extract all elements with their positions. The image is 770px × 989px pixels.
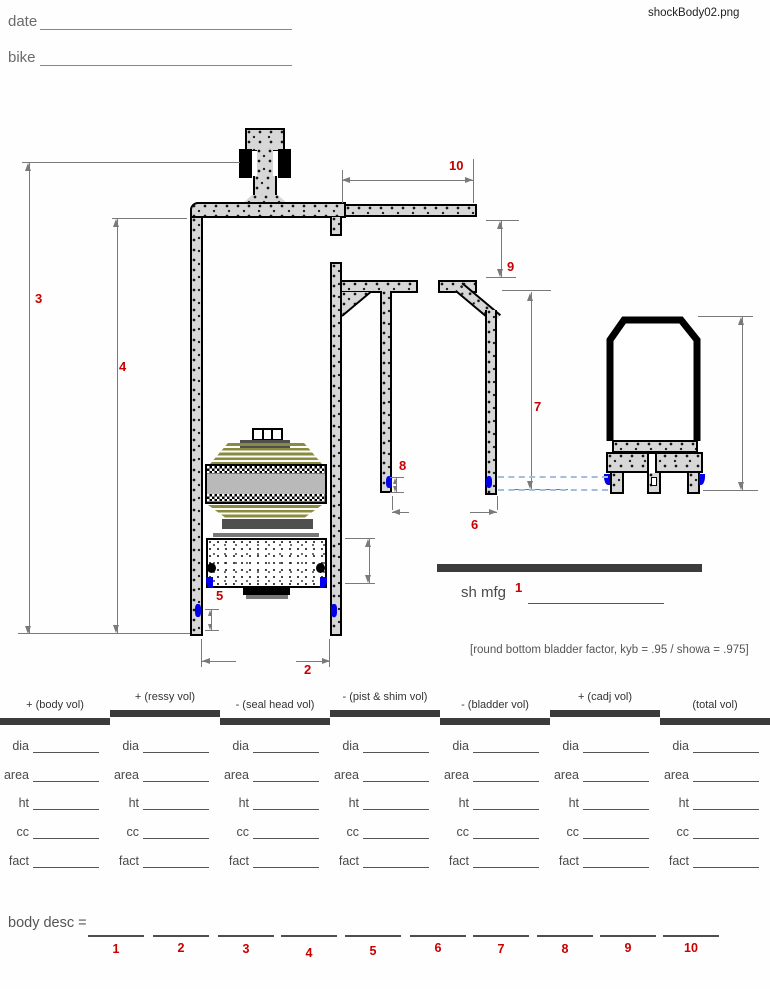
row-label: area	[334, 769, 359, 782]
dim-arrow	[489, 509, 497, 515]
table-row: fact	[110, 845, 209, 868]
dim-line	[742, 316, 743, 490]
vol-input-line[interactable]	[33, 740, 99, 753]
dim-line	[29, 162, 30, 634]
dim-arrow	[365, 575, 371, 583]
bladder-leg-center	[647, 473, 661, 494]
seal-bar-black	[243, 588, 290, 595]
shim-stack-lower	[208, 505, 322, 520]
table-row: area	[0, 759, 99, 782]
wall-oring-left	[195, 604, 201, 617]
vol-input-line[interactable]	[33, 855, 99, 868]
bike-label: bike	[8, 49, 36, 66]
vol-input-line[interactable]	[363, 855, 429, 868]
shim-stack-upper	[210, 443, 322, 464]
row-label: area	[664, 769, 689, 782]
date-input-line[interactable]	[40, 14, 292, 30]
bladder-top-line	[213, 533, 319, 537]
column-divider-bar	[550, 710, 660, 717]
dim-line	[342, 180, 473, 181]
bladder-leg-left	[610, 473, 624, 494]
table-row: cc	[220, 816, 319, 839]
nut-divider	[271, 430, 273, 439]
row-label: cc	[17, 826, 30, 839]
column-divider-bar	[440, 718, 550, 725]
slot-number-10: 10	[663, 941, 719, 955]
dim-arrow	[342, 177, 350, 183]
dim-line	[486, 277, 516, 278]
sh-mfg-label: sh mfg	[461, 584, 506, 601]
vol-input-line[interactable]	[583, 769, 649, 782]
row-label: ht	[129, 797, 139, 810]
dim-line	[345, 583, 375, 584]
column-header: + (body vol)	[0, 699, 110, 711]
dim-line	[502, 290, 551, 291]
row-label: ht	[19, 797, 29, 810]
vol-input-line[interactable]	[253, 769, 319, 782]
table-row: dia	[220, 730, 319, 753]
oring-marker-reservoir	[486, 476, 492, 488]
dim-arrow	[113, 625, 119, 633]
table-row: fact	[220, 845, 319, 868]
dim-arrow	[392, 509, 400, 515]
vol-input-line[interactable]	[363, 740, 429, 753]
vol-input-line[interactable]	[253, 855, 319, 868]
vol-column-bladder: - (bladder vol) dia area ht cc fact	[440, 690, 550, 885]
row-label: area	[224, 769, 249, 782]
bearing-left-block	[239, 149, 252, 178]
dim-arrow	[322, 658, 330, 664]
nut-divider	[262, 430, 264, 439]
reservoir-arm	[346, 204, 477, 217]
row-label: fact	[229, 855, 249, 868]
piston-body	[207, 474, 325, 494]
vol-input-line[interactable]	[473, 855, 539, 868]
row-label: fact	[119, 855, 139, 868]
piston-band-top	[207, 466, 325, 474]
wall-oring-right	[331, 604, 337, 617]
vol-input-line[interactable]	[473, 769, 539, 782]
row-label: cc	[677, 826, 690, 839]
slot-number-1: 1	[88, 942, 144, 956]
dim-label-10: 10	[449, 159, 463, 172]
seal-bar-gray	[246, 595, 288, 599]
vol-input-line[interactable]	[693, 826, 759, 839]
column-divider-bar	[660, 718, 770, 725]
table-row: fact	[0, 845, 99, 868]
vol-input-line[interactable]	[143, 826, 209, 839]
dim-label-5: 5	[216, 589, 223, 602]
table-row: cc	[110, 816, 209, 839]
table-row: ht	[440, 787, 539, 810]
row-label: dia	[562, 740, 579, 753]
table-row: dia	[110, 730, 209, 753]
column-header: + (ressy vol)	[110, 691, 220, 703]
body-desc-slot-9[interactable]	[600, 923, 656, 937]
reference-dashed-line	[498, 476, 608, 478]
table-row: fact	[660, 845, 759, 868]
body-desc-slot-6[interactable]	[410, 923, 466, 937]
vol-column-ressy: + (ressy vol) dia area ht cc fact	[110, 690, 220, 885]
column-header: - (seal head vol)	[220, 699, 330, 711]
slot-number-5: 5	[345, 944, 401, 958]
row-label: ht	[569, 797, 579, 810]
vol-input-line[interactable]	[253, 797, 319, 810]
dim-arrow	[208, 610, 212, 616]
row-label: cc	[457, 826, 470, 839]
row-label: dia	[342, 740, 359, 753]
vol-input-line[interactable]	[143, 855, 209, 868]
dim-line	[531, 292, 532, 489]
dim-label-9: 9	[507, 260, 514, 273]
vol-column-total: (total vol) dia area ht cc fact	[660, 690, 770, 885]
dim-label-1: 1	[515, 581, 522, 594]
vol-input-line[interactable]	[363, 769, 429, 782]
row-label: dia	[232, 740, 249, 753]
table-row: cc	[550, 816, 649, 839]
vol-column-body: + (body vol) dia area ht cc fact	[0, 690, 110, 885]
row-label: fact	[9, 855, 29, 868]
dim-arrow	[113, 219, 119, 227]
piston	[205, 464, 327, 504]
table-row: fact	[330, 845, 429, 868]
row-label: fact	[669, 855, 689, 868]
row-label: cc	[127, 826, 140, 839]
body-desc-slot-10[interactable]	[663, 923, 719, 937]
dim-line	[342, 170, 343, 203]
table-row: dia	[0, 730, 99, 753]
table-row: cc	[660, 816, 759, 839]
vol-input-line[interactable]	[33, 769, 99, 782]
table-row: ht	[110, 787, 209, 810]
row-label: area	[4, 769, 29, 782]
vol-input-line[interactable]	[693, 797, 759, 810]
table-row: cc	[330, 816, 429, 839]
vol-input-line[interactable]	[363, 826, 429, 839]
dim-label-4: 4	[119, 360, 126, 373]
table-row: fact	[550, 845, 649, 868]
table-row: ht	[660, 787, 759, 810]
table-row: fact	[440, 845, 539, 868]
band-dot-left	[207, 563, 216, 573]
row-label: cc	[347, 826, 360, 839]
column-divider-bar	[220, 718, 330, 725]
table-row: cc	[440, 816, 539, 839]
body-desc-slot-7[interactable]	[473, 923, 529, 937]
body-desc-slot-3[interactable]	[218, 923, 274, 937]
dim-label-8: 8	[399, 459, 406, 472]
column-header: (total vol)	[660, 699, 770, 711]
piston-band-bottom	[207, 494, 325, 502]
spacer-bar	[222, 519, 313, 529]
body-left-wall	[190, 218, 203, 636]
body-desc-slot-4[interactable]	[281, 923, 337, 937]
table-row: dia	[550, 730, 649, 753]
image-filename: shockBody02.png	[648, 7, 739, 19]
slot-number-8: 8	[537, 942, 593, 956]
reference-dashed-line	[498, 489, 608, 491]
body-top-cap	[190, 202, 346, 218]
row-label: cc	[237, 826, 250, 839]
corner-seal-left	[206, 577, 213, 588]
floating-piston	[206, 538, 327, 588]
row-label: ht	[679, 797, 689, 810]
vol-input-line[interactable]	[143, 797, 209, 810]
dim-line	[205, 630, 219, 631]
bearing-center-shaft	[257, 149, 273, 178]
vol-input-line[interactable]	[143, 740, 209, 753]
dim-line	[18, 633, 190, 634]
dim-label-2: 2	[304, 663, 311, 676]
row-label: ht	[459, 797, 469, 810]
vol-input-line[interactable]	[473, 826, 539, 839]
body-desc-slot-5[interactable]	[345, 923, 401, 937]
bearing-right-block	[278, 149, 291, 178]
dim-arrow	[202, 658, 210, 664]
vol-input-line[interactable]	[33, 826, 99, 839]
dim-line	[390, 492, 404, 493]
slot-number-2: 2	[153, 941, 209, 955]
table-row: ht	[330, 787, 429, 810]
dim-arrow	[465, 177, 473, 183]
dim-arrow	[738, 482, 744, 490]
table-row: dia	[330, 730, 429, 753]
vol-column-seal-head: - (seal head vol) dia area ht cc fact	[220, 690, 330, 885]
date-label: date	[8, 13, 37, 30]
body-desc-slot-2[interactable]	[153, 923, 209, 937]
vol-input-line[interactable]	[693, 740, 759, 753]
dim-arrow	[527, 293, 533, 301]
vol-input-line[interactable]	[473, 740, 539, 753]
vol-input-line[interactable]	[583, 826, 649, 839]
row-label: fact	[449, 855, 469, 868]
column-header: - (pist & shim vol)	[330, 691, 440, 703]
body-desc-slot-8[interactable]	[537, 923, 593, 937]
column-divider-bar	[110, 710, 220, 717]
dim-arrow	[497, 269, 503, 277]
dim-arrow	[497, 221, 503, 229]
row-label: ht	[239, 797, 249, 810]
table-row: ht	[220, 787, 319, 810]
vol-input-line[interactable]	[363, 797, 429, 810]
right-wall-stub	[330, 217, 342, 236]
vol-input-line[interactable]	[253, 740, 319, 753]
dim-label-7: 7	[534, 400, 541, 413]
row-label: cc	[567, 826, 580, 839]
table-row: area	[220, 759, 319, 782]
vol-input-line[interactable]	[583, 740, 649, 753]
band-dot-right	[316, 563, 325, 573]
vol-input-line[interactable]	[583, 797, 649, 810]
table-row: area	[110, 759, 209, 782]
body-desc-slot-1[interactable]	[88, 923, 144, 937]
dim-line	[22, 162, 240, 163]
table-row: area	[330, 759, 429, 782]
table-row: ht	[550, 787, 649, 810]
bladder-factor-note: [round bottom bladder factor, kyb = .95 …	[470, 644, 749, 656]
row-label: fact	[559, 855, 579, 868]
table-row: area	[660, 759, 759, 782]
dim-line	[117, 218, 118, 633]
dim-arrow	[738, 317, 744, 325]
bladder-seal-right	[699, 474, 705, 485]
dim-arrow	[527, 481, 533, 489]
seal-head-flange	[340, 280, 418, 293]
row-label: area	[554, 769, 579, 782]
dim-arrow	[365, 539, 371, 547]
dim-arrow	[25, 163, 31, 171]
slot-number-9: 9	[600, 941, 656, 955]
dim-line	[112, 218, 187, 219]
bike-input-line[interactable]	[40, 50, 292, 66]
reservoir-wall	[485, 310, 497, 495]
row-label: area	[444, 769, 469, 782]
table-row: dia	[660, 730, 759, 753]
table-row: cc	[0, 816, 99, 839]
table-row: area	[440, 759, 539, 782]
table-row: ht	[0, 787, 99, 810]
table-row: dia	[440, 730, 539, 753]
vol-column-pist-shim: - (pist & shim vol) dia area ht cc fact	[330, 690, 440, 885]
table-row: area	[550, 759, 649, 782]
body-right-wall	[330, 262, 342, 636]
dim-line	[392, 496, 393, 510]
dim-line	[473, 159, 474, 203]
slot-number-7: 7	[473, 942, 529, 956]
vol-input-line[interactable]	[583, 855, 649, 868]
row-label: dia	[122, 740, 139, 753]
vol-input-line[interactable]	[693, 855, 759, 868]
slot-number-4: 4	[281, 946, 337, 960]
bladder-base-slot	[647, 454, 657, 473]
column-divider-bar	[0, 718, 110, 725]
sh-mfg-input-line[interactable]	[528, 588, 664, 604]
dim-line	[698, 316, 753, 317]
row-label: ht	[349, 797, 359, 810]
vol-input-line[interactable]	[693, 769, 759, 782]
row-label: dia	[452, 740, 469, 753]
vol-input-line[interactable]	[143, 769, 209, 782]
vol-column-cadj: + (cadj vol) dia area ht cc fact	[550, 690, 660, 885]
row-label: fact	[339, 855, 359, 868]
column-header: + (cadj vol)	[550, 691, 660, 703]
dim-label-6: 6	[471, 518, 478, 531]
vol-input-line[interactable]	[253, 826, 319, 839]
bladder-dome-outline	[596, 308, 711, 448]
slot-number-3: 3	[218, 942, 274, 956]
dim-line	[497, 496, 498, 510]
row-label: area	[114, 769, 139, 782]
stem-lower	[253, 176, 277, 197]
vol-input-line[interactable]	[473, 797, 539, 810]
body-desc-label: body desc =	[8, 915, 87, 931]
seal-head-stem	[380, 291, 392, 493]
column-divider-bar	[330, 710, 440, 717]
vol-input-line[interactable]	[33, 797, 99, 810]
row-label: dia	[672, 740, 689, 753]
valve-detail	[651, 477, 657, 486]
column-header: - (bladder vol)	[440, 699, 550, 711]
sh-mfg-divider-bar	[437, 564, 702, 572]
dim-label-3: 3	[35, 292, 42, 305]
slot-number-6: 6	[410, 941, 466, 955]
dim-arrow	[393, 478, 397, 484]
dim-line	[703, 490, 758, 491]
row-label: dia	[12, 740, 29, 753]
